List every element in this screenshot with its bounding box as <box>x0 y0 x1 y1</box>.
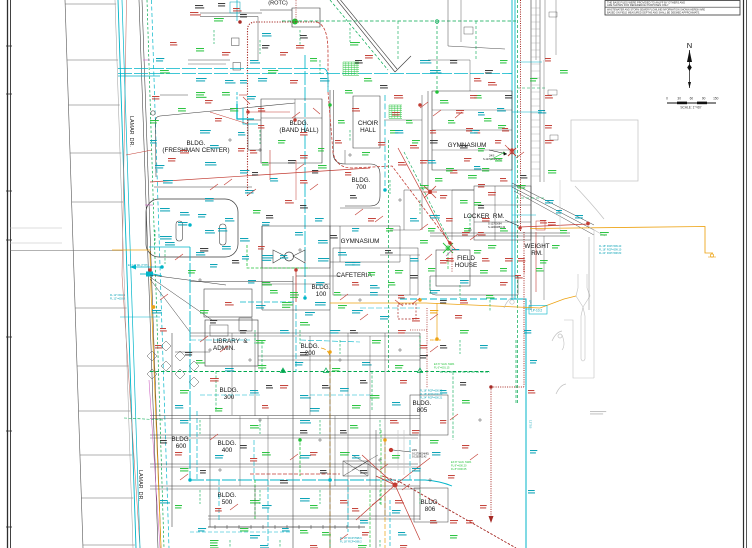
svg-text:BLDG.: BLDG. <box>218 440 237 447</box>
svg-text:BLDG.: BLDG. <box>172 436 191 443</box>
svg-text:LAMAR DR.: LAMAR DR. <box>137 470 143 501</box>
svg-text:FL 8"=600.05: FL 8"=600.05 <box>451 467 467 471</box>
svg-text:(BAND HALL): (BAND HALL) <box>279 127 318 134</box>
svg-text:806: 806 <box>425 506 436 513</box>
svg-text:FL 24" RCP=600.21: FL 24" RCP=600.21 <box>420 397 443 400</box>
svg-text:HALL: HALL <box>360 127 376 134</box>
svg-text:CAFETERIA: CAFETERIA <box>336 272 372 279</box>
svg-text:BASED ON FIELD MEASURED DEPTHS: BASED ON FIELD MEASURED DEPTHS AND SHALL… <box>607 11 700 14</box>
svg-text:30: 30 <box>677 97 681 101</box>
svg-text:FIELD: FIELD <box>457 255 475 262</box>
svg-text:(ROTC): (ROTC) <box>268 1 288 7</box>
svg-text:BLDG.: BLDG. <box>290 120 309 127</box>
svg-text:60: 60 <box>690 97 694 101</box>
svg-text:FL 6"=601.15: FL 6"=601.15 <box>434 366 450 370</box>
svg-text:805: 805 <box>417 407 428 414</box>
svg-text:LAMAR DR.: LAMAR DR. <box>128 116 134 147</box>
svg-text:90: 90 <box>702 97 706 101</box>
svg-text:500: 500 <box>222 499 233 506</box>
svg-text:S-12700034(4D): S-12700034(4D) <box>412 453 429 455</box>
svg-text:WEIGHT: WEIGHT <box>524 243 549 250</box>
svg-text:GYMNASIUM: GYMNASIUM <box>341 238 380 245</box>
svg-text:CHOIR: CHOIR <box>358 120 379 127</box>
svg-text:ARE SHOWN FOR REFERENCE PURPOS: ARE SHOWN FOR REFERENCE PURPOSES ONLY. <box>607 3 669 7</box>
svg-text:FL 12"=603.8: FL 12"=603.8 <box>110 298 126 301</box>
svg-text:EX 6" SAN. SWR.: EX 6" SAN. SWR. <box>434 362 455 366</box>
svg-text:FL 8"=600.20: FL 8"=600.20 <box>451 464 467 468</box>
svg-text:RM.: RM. <box>531 250 543 257</box>
svg-text:BLDG.: BLDG. <box>187 140 206 147</box>
svg-text:EX 8" SAN. SWR.: EX 8" SAN. SWR. <box>451 460 472 464</box>
svg-text:700: 700 <box>356 184 367 191</box>
svg-text:FL 18" RCP=598.2: FL 18" RCP=598.2 <box>340 540 362 544</box>
svg-text:18"RCP: 18"RCP <box>522 262 526 273</box>
svg-text:S-1200703.42: S-1200703.42 <box>412 456 427 458</box>
svg-text:BLDG.: BLDG. <box>218 492 237 499</box>
svg-text:400: 400 <box>222 447 233 454</box>
svg-text:N: N <box>687 41 692 50</box>
svg-text:200: 200 <box>305 350 316 357</box>
svg-text:BLDG.: BLDG. <box>352 177 371 184</box>
svg-text:0: 0 <box>666 97 668 101</box>
svg-text:24S: 24S <box>489 154 494 158</box>
svg-text:100: 100 <box>316 291 327 298</box>
svg-text:HOUSE: HOUSE <box>455 262 477 269</box>
svg-text:600: 600 <box>176 443 187 450</box>
svg-text:24S: 24S <box>412 448 417 452</box>
svg-text:LIBRARY &: LIBRARY & <box>213 338 248 345</box>
svg-text:SCALE: 1"=60': SCALE: 1"=60' <box>680 106 702 110</box>
svg-text:FL 18" RCP=598.6: FL 18" RCP=598.6 <box>340 536 362 540</box>
svg-text:150: 150 <box>713 97 719 101</box>
svg-text:BLDG.: BLDG. <box>413 400 432 407</box>
svg-text:EX 12" WL (TYP): EX 12" WL (TYP) <box>128 263 148 267</box>
svg-text:FL 24" RCP=598.80: FL 24" RCP=598.80 <box>599 252 622 255</box>
svg-text:BLDG.: BLDG. <box>220 387 239 394</box>
svg-text:LP-10.2: LP-10.2 <box>531 309 542 313</box>
svg-text:12"SS: 12"SS <box>529 420 533 428</box>
svg-text:(FRESHMAN CENTER): (FRESHMAN CENTER) <box>162 147 229 154</box>
